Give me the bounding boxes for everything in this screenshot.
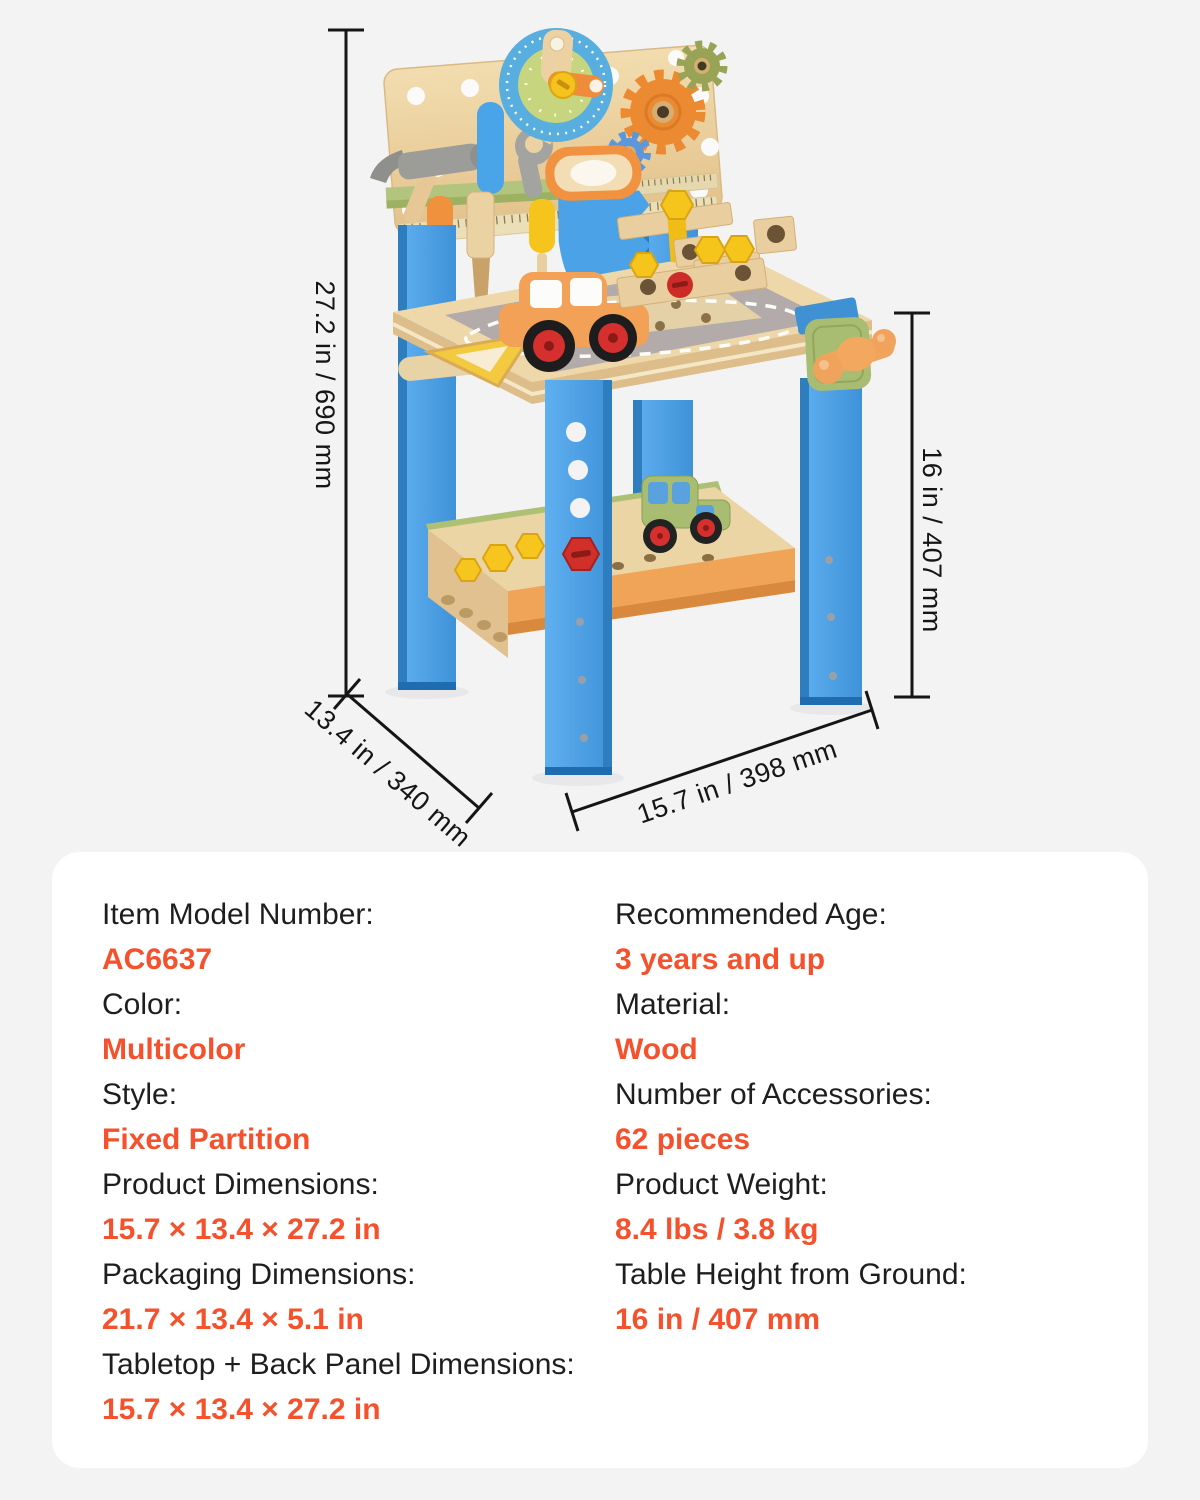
spec-value: 21.7 × 13.4 × 5.1 in: [102, 1297, 615, 1342]
spec-value: Wood: [615, 1027, 1128, 1072]
spec-value: 62 pieces: [615, 1117, 1128, 1162]
infographic-canvas: 27.2 in / 690 mm 13.4 in / 340 mm 15.7 i…: [0, 0, 1200, 1500]
spec-label: Product Weight:: [615, 1162, 1128, 1207]
spec-label: Product Dimensions:: [102, 1162, 615, 1207]
toy-blue-cylinder: [477, 102, 504, 194]
spec-label: Style:: [102, 1072, 615, 1117]
spec-label: Packaging Dimensions:: [102, 1252, 615, 1297]
toy-vise: [794, 297, 897, 392]
spec-label: Recommended Age:: [615, 892, 1128, 937]
front-left-leg: [545, 380, 612, 775]
spec-value: Fixed Partition: [102, 1117, 615, 1162]
spec-value: 15.7 × 13.4 × 27.2 in: [102, 1207, 615, 1252]
spec-label: Item Model Number:: [102, 892, 615, 937]
spec-value: 15.7 × 13.4 × 27.2 in: [102, 1387, 615, 1432]
front-right-leg: [800, 378, 862, 705]
spec-value: AC6637: [102, 937, 615, 982]
spec-label: Material:: [615, 982, 1128, 1027]
depth-dimension-label: 13.4 in / 340 mm: [299, 694, 477, 850]
spec-card: Item Model Number: AC6637 Color: Multico…: [52, 852, 1148, 1468]
spec-value: Multicolor: [102, 1027, 615, 1072]
spec-value: 3 years and up: [615, 937, 1128, 982]
spec-label: Number of Accessories:: [615, 1072, 1128, 1117]
spec-value: 16 in / 407 mm: [615, 1297, 1128, 1342]
table-height-dimension-label: 16 in / 407 mm: [917, 447, 947, 633]
rear-left-leg: [398, 225, 456, 690]
workbench-illustration: 27.2 in / 690 mm 13.4 in / 340 mm 15.7 i…: [0, 0, 1200, 850]
spec-label: Color:: [102, 982, 615, 1027]
spec-label: Tabletop + Back Panel Dimensions:: [102, 1342, 615, 1387]
clock-toy: [499, 28, 613, 142]
spec-label: Table Height from Ground:: [615, 1252, 1128, 1297]
spec-value: 8.4 lbs / 3.8 kg: [615, 1207, 1128, 1252]
spec-column-left: Item Model Number: AC6637 Color: Multico…: [102, 892, 615, 1432]
spec-column-right: Recommended Age: 3 years and up Material…: [615, 892, 1128, 1432]
height-dimension-label: 27.2 in / 690 mm: [310, 280, 340, 489]
